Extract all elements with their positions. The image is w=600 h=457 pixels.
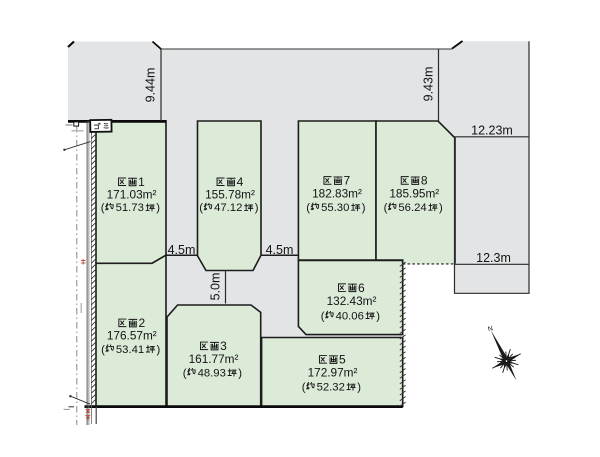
svg-text:55.30: 55.30 — [321, 202, 349, 214]
svg-text:): ) — [255, 202, 259, 214]
svg-text:): ) — [357, 381, 361, 393]
svg-text:): ) — [157, 344, 161, 356]
svg-text:9.44m: 9.44m — [144, 68, 158, 103]
svg-text:(: ( — [101, 344, 105, 356]
svg-text:(: ( — [183, 367, 187, 379]
svg-text:7: 7 — [344, 174, 351, 188]
svg-text:): ) — [238, 367, 242, 379]
svg-text:): ) — [376, 310, 380, 322]
svg-text:185.95m²: 185.95m² — [389, 187, 439, 201]
svg-text:5: 5 — [339, 353, 346, 367]
svg-text:155.78m²: 155.78m² — [205, 187, 255, 201]
svg-text:47.12: 47.12 — [214, 202, 242, 214]
svg-text:48.93: 48.93 — [198, 367, 226, 379]
svg-text:171.03m²: 171.03m² — [107, 187, 157, 201]
svg-text:8: 8 — [421, 174, 428, 188]
svg-text:12.3m: 12.3m — [476, 251, 511, 265]
svg-text:176.57m²: 176.57m² — [107, 329, 157, 343]
svg-text:51.73: 51.73 — [116, 202, 144, 214]
svg-text:(: ( — [101, 202, 105, 214]
svg-text:52.32: 52.32 — [317, 381, 345, 393]
svg-text:(: ( — [306, 202, 310, 214]
svg-text:9.43m: 9.43m — [422, 67, 436, 102]
svg-text:): ) — [439, 202, 443, 214]
svg-text:56.24: 56.24 — [398, 202, 426, 214]
svg-text:172.97m²: 172.97m² — [308, 366, 358, 380]
svg-text:5.0m: 5.0m — [209, 273, 223, 301]
svg-text:161.77m²: 161.77m² — [189, 352, 239, 366]
svg-text:(: ( — [384, 202, 388, 214]
svg-text:4.5m: 4.5m — [168, 243, 196, 257]
svg-text:6: 6 — [358, 281, 365, 295]
svg-text:(: ( — [199, 202, 203, 214]
svg-text:): ) — [156, 202, 160, 214]
svg-text:182.83m²: 182.83m² — [312, 187, 362, 201]
svg-text:4.5m: 4.5m — [266, 243, 294, 257]
svg-text:(: ( — [302, 381, 306, 393]
svg-text:40.06: 40.06 — [336, 310, 364, 322]
svg-text:(: ( — [321, 310, 325, 322]
svg-text:3: 3 — [220, 339, 227, 353]
svg-text:132.43m²: 132.43m² — [327, 294, 377, 308]
svg-text:12.23m: 12.23m — [471, 123, 513, 137]
svg-text:): ) — [362, 202, 366, 214]
svg-text:53.41: 53.41 — [116, 344, 144, 356]
